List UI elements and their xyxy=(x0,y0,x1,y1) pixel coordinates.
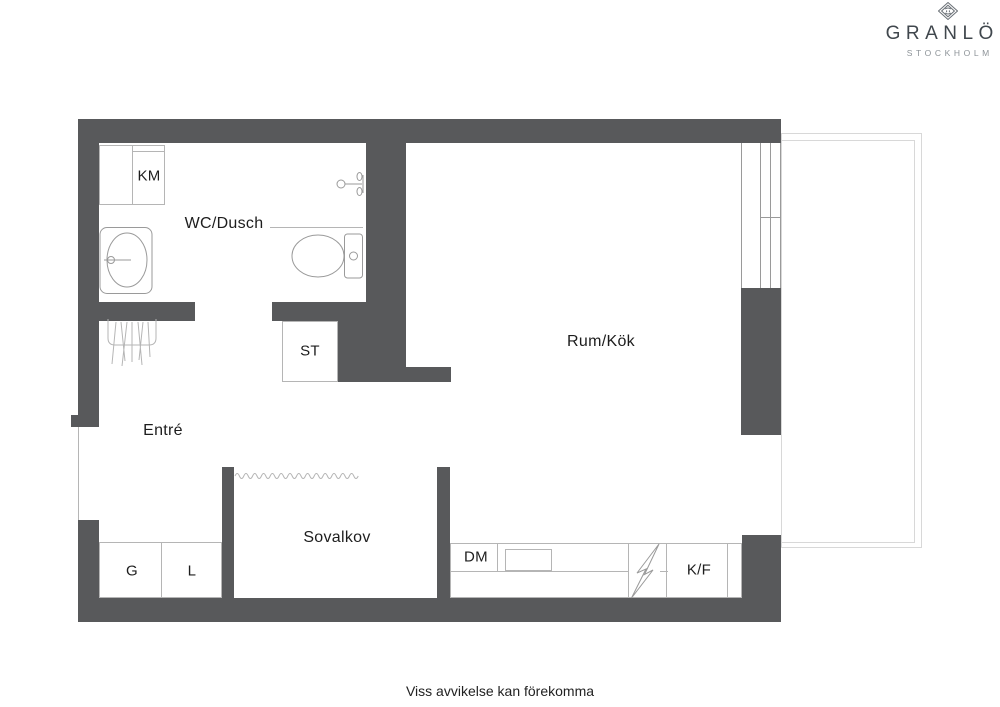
coat-rack-shelf xyxy=(108,319,156,345)
faucet-lobe-bottom xyxy=(357,188,362,196)
wall-wc-bottom-left xyxy=(99,302,195,321)
window-left-line xyxy=(78,427,79,520)
label-entre: Entré xyxy=(143,422,183,440)
label-wc-dusch: WC/Dusch xyxy=(185,215,264,233)
faucet-ring xyxy=(337,180,345,188)
wall-sovalkov-right xyxy=(437,467,450,598)
sink-basin xyxy=(107,233,147,287)
toilet-icon xyxy=(292,234,363,278)
logo-name: GRANLÖF xyxy=(868,23,1000,45)
window-right-tick xyxy=(760,217,781,218)
label-st: ST xyxy=(300,343,320,360)
wall-stub-rum xyxy=(406,367,451,382)
wall-left-nub xyxy=(71,415,78,427)
gl-closet-divider xyxy=(161,542,162,598)
disclaimer-text: Viss avvikelse kan förekomma xyxy=(406,683,594,699)
window-right-line-2 xyxy=(760,143,761,288)
toilet-button xyxy=(350,252,358,260)
wall-wc-rum xyxy=(366,143,406,382)
floor-plan-page: GRANLÖF STOCKHOLM xyxy=(0,0,1000,707)
km-cabinet-tick xyxy=(132,151,165,152)
window-right-line-1 xyxy=(741,143,742,288)
kitchen-sink-box xyxy=(505,549,552,571)
balcony-outline-inner xyxy=(781,140,915,543)
coat-rack-hangers xyxy=(112,322,150,366)
wall-right-bottom-pillar xyxy=(742,535,781,598)
wall-sovalkov-left xyxy=(222,467,234,598)
logo: GRANLÖF STOCKHOLM xyxy=(868,0,1000,58)
counter-divider-dm xyxy=(497,543,498,571)
sink-tap-knob xyxy=(108,257,115,264)
shower-faucet-icon xyxy=(337,173,363,196)
label-kf: K/F xyxy=(687,562,711,579)
sink-outline xyxy=(100,228,152,294)
label-km: KM xyxy=(137,168,160,185)
curtain-wave xyxy=(235,474,358,479)
label-dm: DM xyxy=(464,549,488,566)
sink-icon xyxy=(100,228,152,294)
label-g: G xyxy=(126,563,138,580)
coat-rack-icon xyxy=(108,319,156,366)
wall-st-right xyxy=(338,321,366,382)
wall-right-block xyxy=(741,288,781,435)
logo-city: STOCKHOLM xyxy=(868,48,1000,58)
toilet-tank xyxy=(345,234,363,278)
label-rum-kok: Rum/Kök xyxy=(567,333,635,351)
wc-label-leader-line xyxy=(270,227,363,228)
label-l: L xyxy=(188,563,197,580)
monogram-curls xyxy=(945,8,951,14)
diamond-monogram-icon xyxy=(938,2,958,20)
wall-bottom xyxy=(78,598,781,622)
wall-wc-bottom-right xyxy=(272,302,366,321)
label-sovalkov: Sovalkov xyxy=(303,529,370,547)
toilet-bowl xyxy=(292,235,344,277)
wall-left-upper xyxy=(78,119,99,427)
wall-top xyxy=(78,119,781,143)
km-cabinet-divider xyxy=(132,145,133,205)
window-right-line-3 xyxy=(770,143,771,288)
counter-midline xyxy=(450,571,628,572)
counter-divider-kf xyxy=(727,543,728,598)
counter-divider-stove-left xyxy=(628,543,629,598)
counter-midline-stove xyxy=(660,571,668,572)
window-right-line-4 xyxy=(780,143,781,288)
faucet-lobe-top xyxy=(357,173,362,181)
